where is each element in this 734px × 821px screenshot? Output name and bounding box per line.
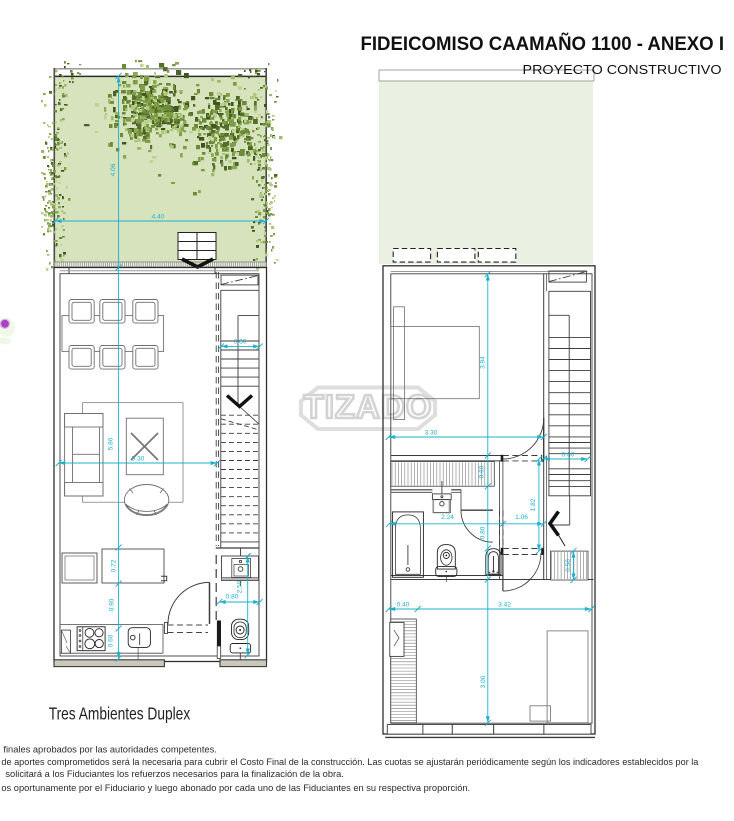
svg-text:FIDEICOMISO CAAMAÑO 1100 - ANE: FIDEICOMISO CAAMAÑO 1100 - ANEXO I (361, 32, 725, 55)
svg-text:finales aprobados por las auto: finales aprobados por las autoridades co… (3, 744, 216, 754)
svg-text:0.80: 0.80 (562, 452, 575, 459)
svg-text:4.40: 4.40 (152, 214, 165, 221)
svg-text:4.06: 4.06 (110, 163, 117, 176)
svg-text:0.60: 0.60 (108, 634, 115, 647)
svg-text:PROYECTO CONSTRUCTIVO: PROYECTO CONSTRUCTIVO (523, 62, 722, 77)
svg-text:0.72: 0.72 (111, 559, 118, 572)
svg-text:3.30: 3.30 (425, 430, 438, 437)
svg-text:3.42: 3.42 (498, 602, 511, 609)
svg-text:0.80: 0.80 (234, 339, 247, 346)
svg-text:0.90: 0.90 (109, 598, 116, 611)
svg-text:5.30: 5.30 (132, 456, 145, 463)
svg-text:Tres Ambientes Duplex: Tres Ambientes Duplex (49, 704, 191, 724)
svg-text:2.24: 2.24 (441, 514, 454, 521)
svg-text:TIZADO: TIZADO (304, 388, 433, 425)
svg-text:solicitará a los Fiduciantes l: solicitará a los Fiduciantes los refuerz… (5, 769, 343, 779)
svg-text:0.40: 0.40 (397, 602, 410, 609)
svg-text:3.00: 3.00 (480, 675, 487, 688)
svg-text:0.58: 0.58 (565, 559, 572, 572)
svg-text:0.80: 0.80 (479, 526, 486, 539)
svg-text:2.50: 2.50 (237, 580, 244, 593)
svg-text:0.80: 0.80 (226, 594, 239, 601)
svg-text:1.82: 1.82 (530, 498, 537, 511)
svg-text:3.94: 3.94 (480, 356, 487, 369)
svg-text:de aportes comprometidos será: de aportes comprometidos será la necesar… (1, 757, 699, 767)
svg-text:1.06: 1.06 (515, 514, 528, 521)
svg-text:os oportunamente por el Fiduci: os oportunamente por el Fiduciario y lue… (1, 783, 470, 793)
svg-text:0.60: 0.60 (479, 465, 486, 478)
svg-text:5.86: 5.86 (108, 437, 115, 450)
